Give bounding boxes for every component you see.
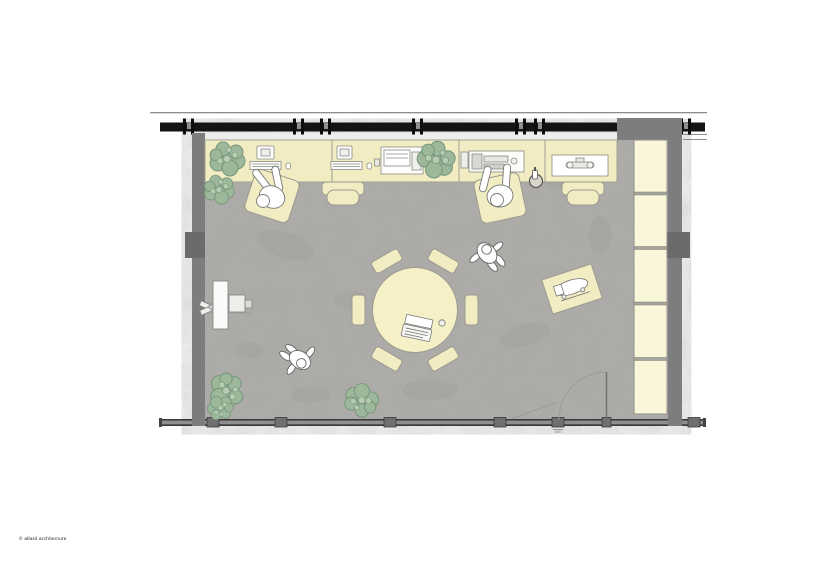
workstation-machine [461, 151, 524, 172]
corner-wall-block [617, 118, 682, 140]
page: © allard architecture [0, 0, 825, 583]
printer-copier [375, 147, 424, 174]
bottom-wall [159, 418, 706, 433]
right-wall [668, 138, 682, 426]
window-frame [160, 123, 617, 132]
bottle [533, 170, 538, 179]
desk-chair-empty [562, 182, 604, 205]
cup [439, 320, 445, 326]
shelf-unit [634, 140, 667, 414]
floor-plan-svg [0, 0, 825, 583]
left-wall [192, 133, 205, 426]
copyright-text: © allard architecture [19, 537, 67, 542]
facade-line [150, 112, 707, 113]
left-pilaster [185, 232, 205, 258]
dimension-marks [553, 429, 563, 433]
table-top [373, 268, 458, 353]
drawing-board [552, 155, 608, 176]
desk-chair-empty [322, 182, 364, 205]
